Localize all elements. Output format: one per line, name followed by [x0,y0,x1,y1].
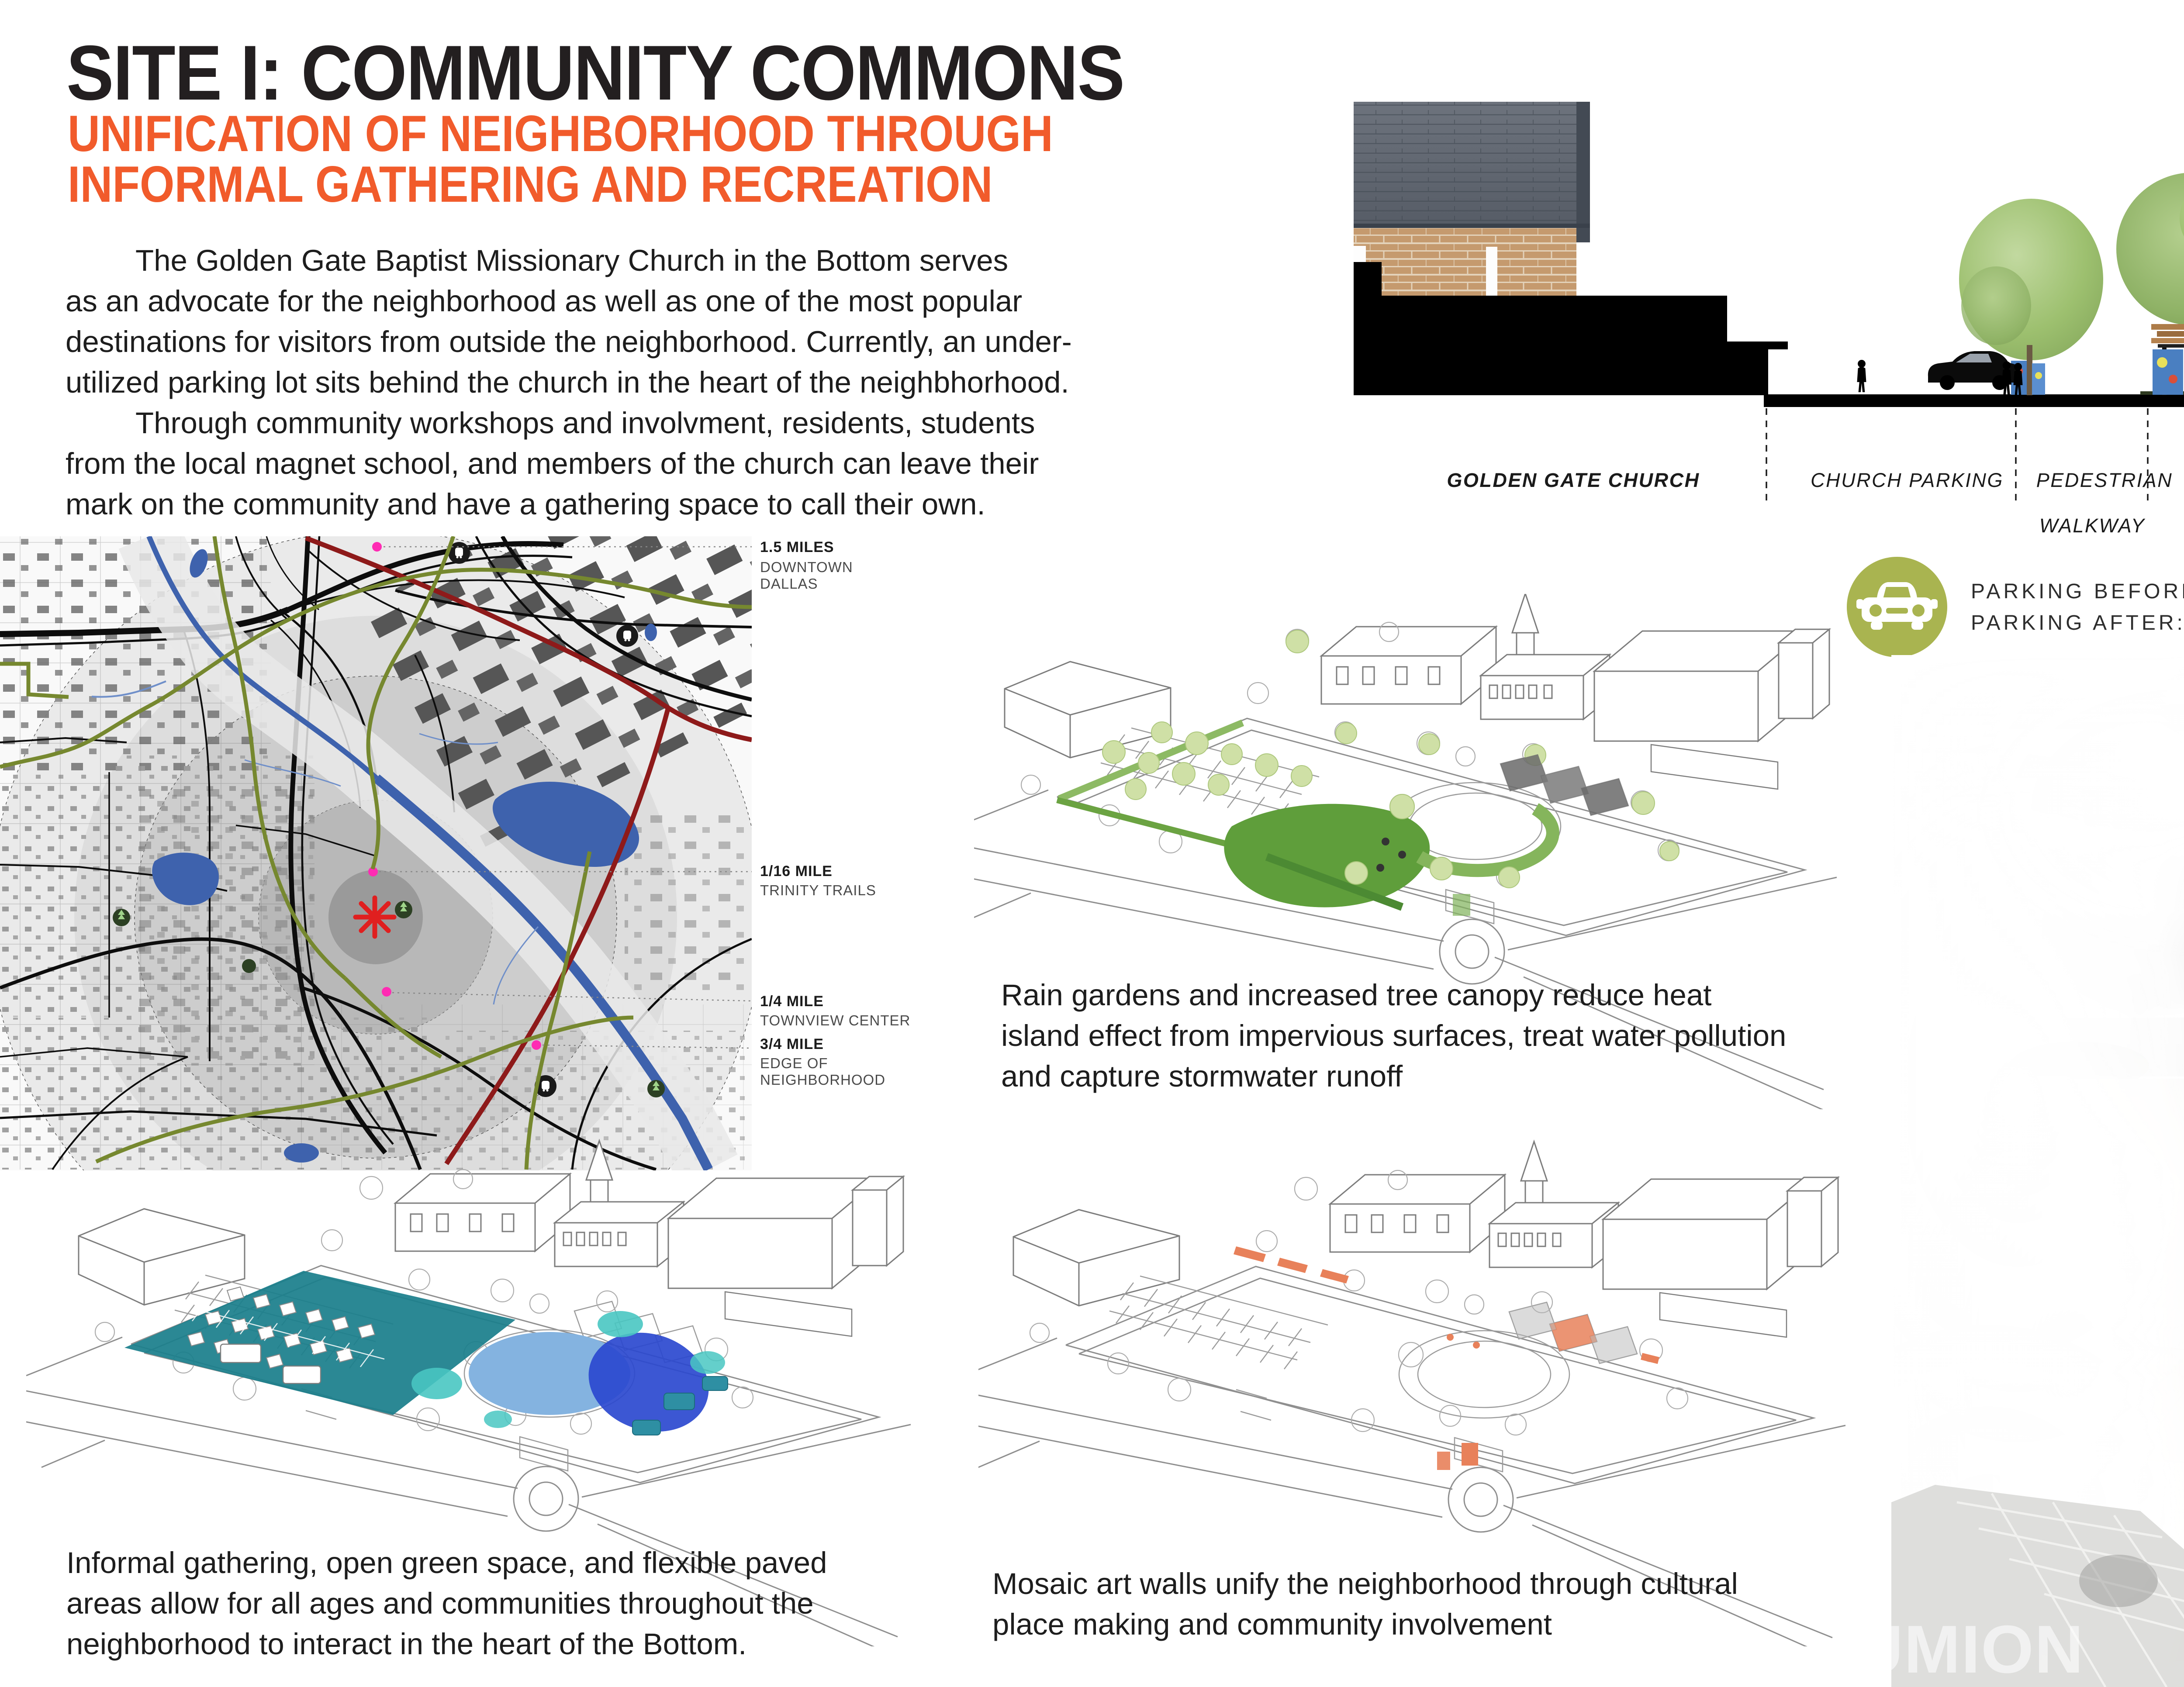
svg-text:UMION: UMION [1891,1611,2084,1687]
svg-text:PARKING BEFORE: 118 SPACES: PARKING BEFORE: 118 SPACES [1971,580,2184,603]
svg-text:PARKING AFTER: 66 SPACES: PARKING AFTER: 66 SPACES [1971,611,2184,635]
